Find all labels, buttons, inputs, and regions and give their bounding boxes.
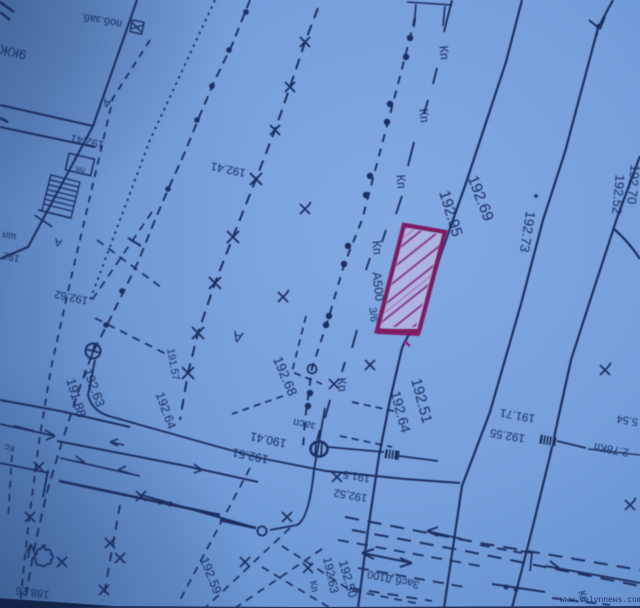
svg-text:Кп: Кп	[393, 174, 408, 189]
svg-text:www.volynnews.com: www.volynnews.com	[560, 596, 640, 605]
svg-text:Кп: Кп	[334, 377, 349, 392]
svg-text:Кп: Кп	[369, 240, 384, 255]
svg-text:Кп: Кп	[416, 108, 431, 123]
svg-text:Кс: Кс	[3, 441, 15, 454]
svg-text:3/6: 3/6	[366, 307, 380, 323]
svg-text:Кп: Кп	[307, 580, 320, 593]
svg-text:Кп: Кп	[436, 45, 451, 60]
